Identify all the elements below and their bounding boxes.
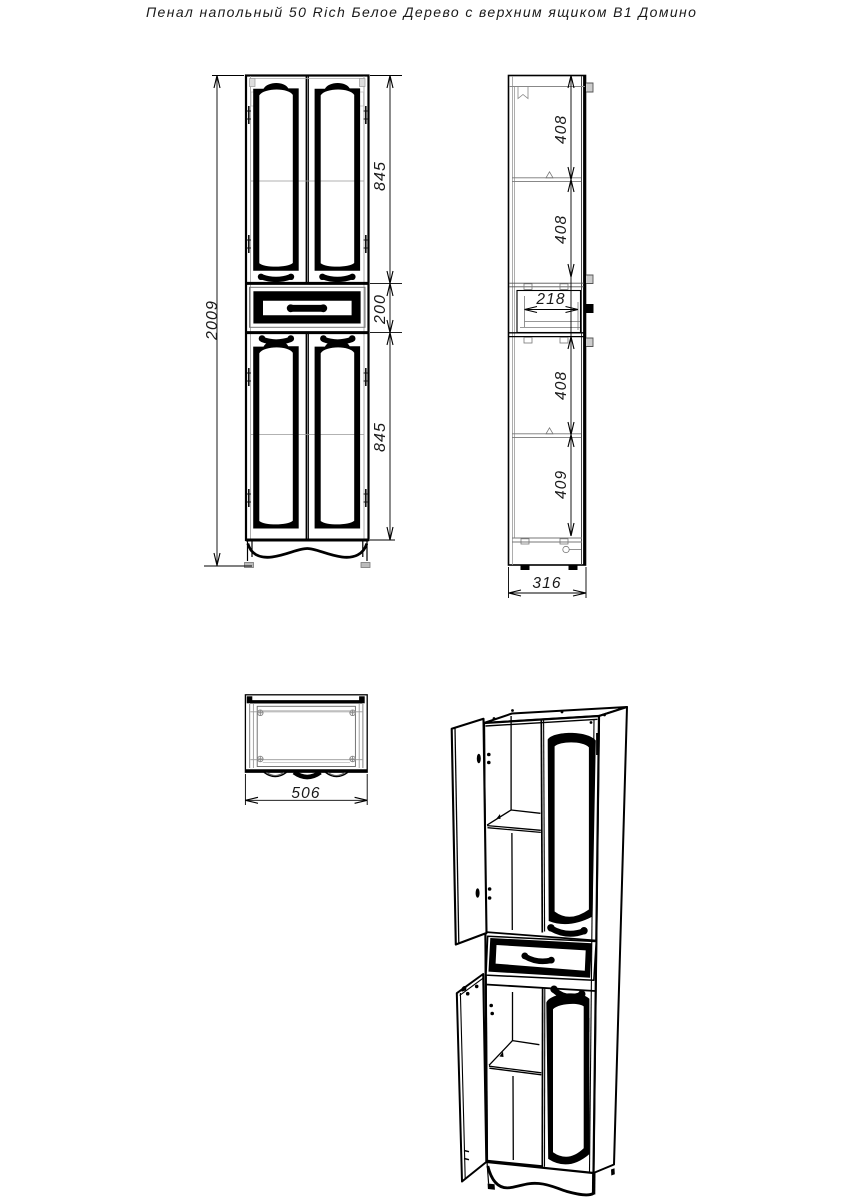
svg-text:2009: 2009 xyxy=(204,300,221,341)
svg-text:200: 200 xyxy=(372,294,389,325)
svg-text:408: 408 xyxy=(553,215,570,244)
svg-text:409: 409 xyxy=(553,470,570,499)
svg-text:218: 218 xyxy=(535,291,565,308)
svg-text:845: 845 xyxy=(372,161,389,191)
svg-text:408: 408 xyxy=(553,371,570,400)
svg-text:845: 845 xyxy=(372,422,389,452)
svg-text:408: 408 xyxy=(553,115,570,144)
svg-text:506: 506 xyxy=(291,785,320,802)
svg-text:Пенал напольный 50 Rich Белое: Пенал напольный 50 Rich Белое Дерево с в… xyxy=(146,4,697,20)
svg-text:316: 316 xyxy=(532,575,561,592)
